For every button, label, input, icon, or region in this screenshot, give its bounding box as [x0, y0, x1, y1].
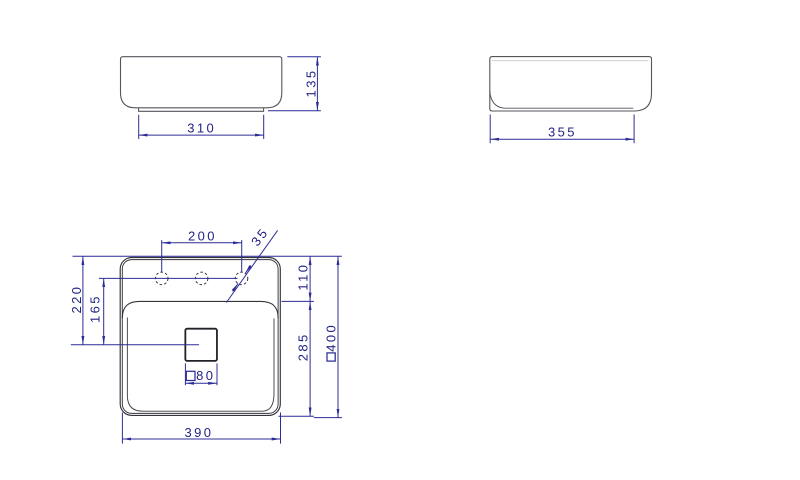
svg-text:110: 110 — [296, 263, 311, 291]
svg-text:310: 310 — [187, 121, 216, 136]
svg-text:165: 165 — [88, 294, 103, 323]
svg-text:285: 285 — [296, 332, 311, 361]
svg-text:355: 355 — [548, 124, 577, 139]
svg-text:135: 135 — [303, 69, 318, 98]
svg-text:220: 220 — [69, 285, 84, 314]
svg-text:35: 35 — [248, 224, 272, 248]
svg-text:200: 200 — [188, 229, 217, 244]
svg-text:390: 390 — [185, 425, 214, 440]
svg-text:400: 400 — [323, 323, 338, 352]
svg-text:80: 80 — [196, 368, 215, 383]
